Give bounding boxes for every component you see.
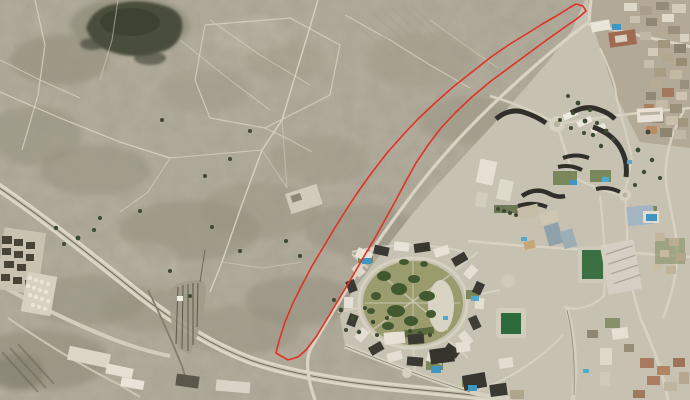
pool (443, 316, 448, 320)
trees-shape (298, 254, 302, 258)
tanks-shape (38, 288, 42, 292)
trees-shape (514, 213, 518, 217)
buildings-shape (660, 250, 669, 257)
green-areas-shape (391, 283, 407, 295)
buildings-shape (669, 238, 679, 246)
buildings-shape (26, 254, 34, 261)
tanks-shape (34, 278, 38, 282)
trees-shape (98, 216, 102, 220)
tanks-shape (34, 295, 38, 299)
buildings-shape (672, 4, 686, 13)
trees-shape (357, 330, 361, 334)
roundabout-3 (402, 368, 412, 378)
buildings-shape (660, 128, 672, 137)
buildings-shape (662, 88, 674, 97)
trees-shape (428, 333, 432, 337)
buildings-shape (676, 58, 687, 66)
pool (569, 180, 577, 185)
tanks-shape (28, 276, 32, 280)
green-areas-shape (419, 291, 435, 301)
buildings-shape (624, 344, 634, 352)
tanks-shape (31, 303, 35, 307)
pool (521, 237, 527, 241)
trees-shape (508, 211, 512, 215)
buildings-shape (647, 376, 660, 385)
aerial-photo-map[interactable] (0, 0, 690, 400)
trees-shape (633, 183, 637, 187)
buildings-shape (14, 251, 23, 258)
plaza-circle (501, 274, 515, 288)
buildings-shape (26, 242, 35, 249)
buildings-shape (680, 34, 689, 42)
buildings-shape (407, 356, 424, 366)
map-viewport (0, 0, 690, 400)
trees-shape (160, 118, 164, 122)
buildings-shape (653, 264, 661, 271)
buildings-shape (2, 236, 12, 244)
buildings-shape (656, 2, 669, 10)
urban-streets-shape (589, 0, 591, 21)
tanks-shape (43, 307, 47, 311)
buildings-shape (678, 118, 688, 127)
tanks-shape (46, 282, 50, 286)
buildings-shape (674, 130, 686, 139)
trees-shape (611, 137, 615, 141)
trees-shape (228, 157, 232, 161)
trees-shape (248, 129, 252, 133)
trees-shape (54, 226, 58, 230)
buildings-shape (510, 390, 524, 399)
buildings-shape (624, 3, 637, 11)
green-areas-shape (426, 310, 436, 318)
buildings-shape (680, 80, 689, 89)
buildings-shape (2, 248, 11, 255)
tanks-shape (26, 284, 30, 288)
stadium-pitch (501, 313, 521, 334)
trees-shape (385, 316, 389, 320)
trees-shape (332, 298, 336, 302)
green-areas-shape (605, 318, 620, 328)
buildings-shape (662, 14, 674, 22)
buildings-shape (676, 253, 686, 261)
dark-vegetation-shape (80, 38, 104, 50)
urban-streets-shape (623, 193, 628, 198)
buildings-shape (646, 18, 657, 26)
pool (583, 369, 589, 373)
trees-shape (650, 158, 654, 162)
buildings-shape (652, 28, 664, 36)
buildings-shape (587, 330, 598, 338)
green-areas-shape (387, 305, 405, 317)
buildings-shape (662, 54, 674, 62)
trees-shape (284, 239, 288, 243)
buildings-shape (640, 6, 652, 15)
trees-shape (642, 170, 646, 174)
buildings-shape (679, 372, 689, 384)
trees-shape (238, 249, 242, 253)
buildings-shape (674, 44, 686, 53)
trees-shape (658, 176, 662, 180)
buildings-shape (408, 333, 425, 344)
green-areas-shape (399, 259, 409, 265)
buildings-shape (498, 357, 513, 369)
park-plaza (428, 280, 454, 332)
buildings-shape (668, 26, 680, 34)
trees-shape (408, 329, 412, 333)
buildings-shape (664, 382, 677, 391)
trees-shape (371, 320, 375, 324)
buildings-shape (646, 92, 656, 100)
dark-vegetation-shape (100, 8, 160, 36)
buildings-shape (650, 80, 661, 88)
tanks-shape (46, 299, 50, 303)
green-areas-shape (408, 275, 420, 283)
buildings-shape (654, 68, 666, 77)
trees-shape (339, 308, 344, 313)
buildings-shape (4, 261, 14, 268)
buildings-shape (611, 327, 628, 340)
dark-vegetation-shape (134, 51, 166, 65)
buildings-shape (666, 116, 678, 125)
buildings-shape (630, 16, 640, 23)
trees-shape (203, 174, 207, 178)
trees-shape (636, 148, 641, 153)
buildings-shape (658, 40, 670, 48)
sports-field (582, 250, 603, 279)
buildings-shape (648, 48, 658, 56)
trees-shape (646, 130, 651, 135)
tanks-shape (32, 286, 36, 290)
tanks-shape (28, 293, 32, 297)
pool (612, 24, 621, 30)
buildings-shape (14, 239, 23, 246)
buildings-shape (640, 32, 651, 40)
buildings-shape (394, 241, 410, 251)
buildings-shape (676, 92, 687, 100)
buildings-shape (600, 372, 610, 386)
tanks-shape (44, 290, 48, 294)
buildings-shape (489, 383, 508, 397)
trees-shape (569, 126, 573, 130)
trees-shape (496, 207, 500, 211)
green-areas-shape (367, 308, 375, 314)
buildings-shape (633, 390, 645, 398)
pool (431, 366, 441, 373)
buildings-shape (344, 297, 353, 308)
tanks-shape (37, 305, 41, 309)
green-areas-shape (371, 292, 381, 300)
green-areas-shape (420, 261, 428, 267)
trees-shape (76, 236, 81, 241)
green-areas-shape (404, 316, 418, 326)
buildings-shape (640, 358, 654, 368)
pool (602, 177, 609, 182)
buildings-shape (657, 366, 670, 375)
green-areas-shape (382, 322, 394, 330)
trees-shape (351, 316, 356, 321)
trees-shape (604, 129, 609, 134)
pool (646, 214, 657, 221)
white-farm (177, 296, 183, 301)
buildings-shape (13, 277, 22, 284)
green-areas-shape (377, 271, 391, 281)
urban-streets-shape (554, 121, 560, 127)
pool (468, 385, 477, 391)
tanks-shape (40, 280, 44, 284)
trees-shape (595, 121, 599, 125)
trees-shape (188, 294, 192, 298)
buildings-shape (17, 264, 26, 271)
buildings-shape (384, 331, 406, 345)
trees-shape (558, 118, 562, 122)
trees-shape (566, 94, 570, 98)
trees-shape (92, 228, 96, 232)
trees-shape (138, 209, 142, 213)
pool (627, 160, 632, 164)
buildings-shape (1, 274, 10, 281)
trees-shape (571, 111, 575, 115)
trees-shape (583, 119, 588, 124)
buildings-shape (670, 104, 682, 113)
trees-shape (582, 131, 586, 135)
buildings-shape (655, 233, 665, 241)
tanks-shape (40, 297, 44, 301)
trees-shape (168, 269, 172, 273)
buildings-shape (600, 348, 612, 365)
trees-shape (375, 333, 379, 337)
trees-shape (599, 144, 603, 148)
pool (471, 296, 479, 301)
trees-shape (210, 225, 214, 229)
buildings-shape (673, 358, 685, 367)
trees-shape (576, 101, 581, 106)
trees-shape (363, 306, 367, 310)
buildings-shape (455, 341, 470, 353)
trees-shape (418, 331, 422, 335)
trees-shape (591, 133, 595, 137)
trees-shape (588, 108, 592, 112)
buildings-shape (644, 60, 654, 68)
buildings-shape (666, 266, 676, 274)
buildings-shape (670, 70, 682, 79)
trees-shape (62, 242, 66, 246)
trees-shape (344, 328, 348, 332)
trees-shape (502, 209, 506, 213)
